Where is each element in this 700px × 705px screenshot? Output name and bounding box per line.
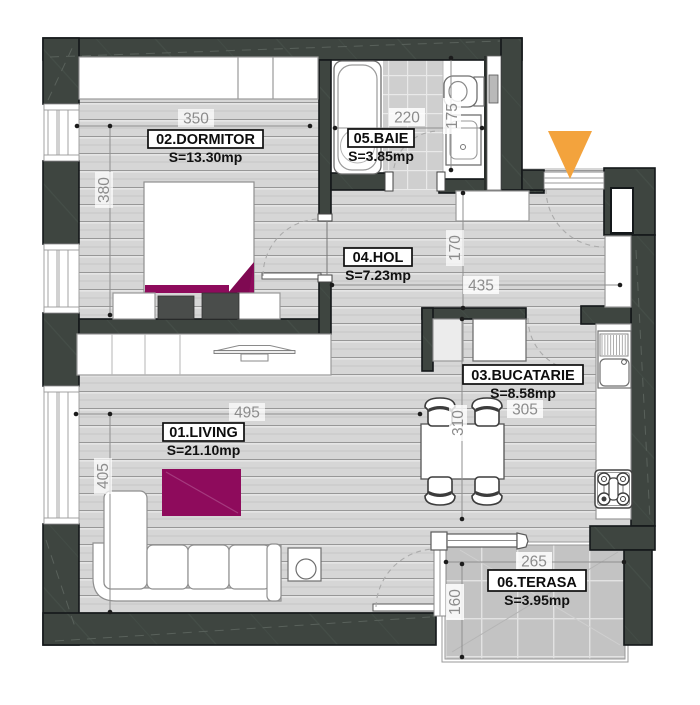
svg-text:04.HOL: 04.HOL (353, 250, 404, 266)
svg-text:S=3.85mp: S=3.85mp (348, 148, 414, 164)
svg-text:220: 220 (394, 110, 420, 127)
svg-text:S=13.30mp: S=13.30mp (169, 149, 243, 165)
svg-text:06.TERASA: 06.TERASA (497, 575, 577, 591)
svg-text:03.BUCATARIE: 03.BUCATARIE (471, 368, 575, 384)
svg-text:350: 350 (183, 111, 209, 128)
svg-text:495: 495 (234, 405, 260, 422)
svg-text:S=7.23mp: S=7.23mp (345, 267, 411, 283)
svg-text:S=21.10mp: S=21.10mp (167, 442, 241, 458)
svg-text:02.DORMITOR: 02.DORMITOR (156, 132, 255, 148)
svg-text:170: 170 (447, 235, 464, 261)
svg-text:175: 175 (444, 103, 461, 129)
svg-text:405: 405 (95, 463, 112, 489)
svg-text:310: 310 (450, 410, 467, 436)
svg-text:380: 380 (96, 177, 113, 203)
svg-text:160: 160 (447, 589, 464, 615)
svg-text:05.BAIE: 05.BAIE (354, 131, 409, 147)
svg-text:S=8.58mp: S=8.58mp (490, 385, 556, 401)
svg-text:265: 265 (521, 554, 547, 571)
svg-text:S=3.95mp: S=3.95mp (504, 592, 570, 608)
svg-text:435: 435 (468, 278, 494, 295)
svg-text:01.LIVING: 01.LIVING (169, 425, 238, 441)
svg-text:305: 305 (512, 402, 538, 419)
